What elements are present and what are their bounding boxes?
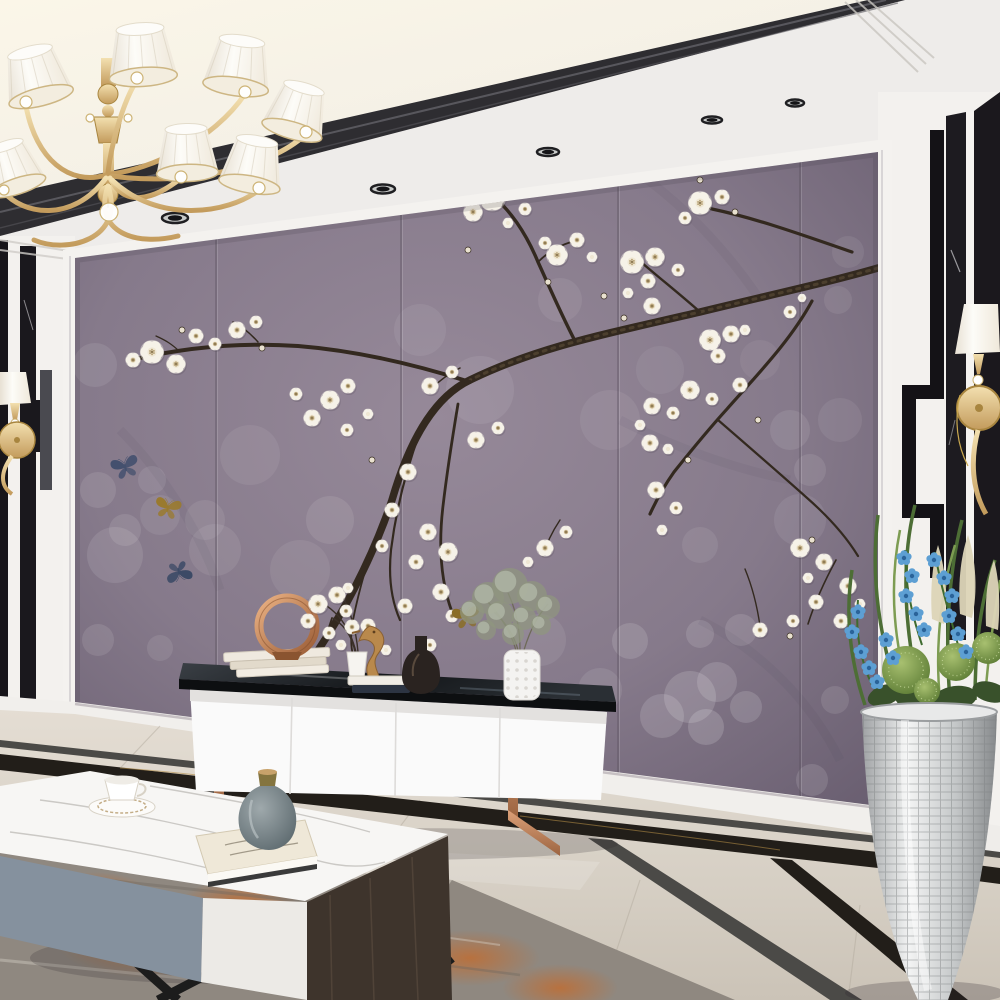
crystal-ball: [124, 114, 132, 122]
crystal-ball: [86, 114, 94, 122]
left-black-stripe: [20, 246, 36, 708]
bud: [465, 247, 471, 253]
bud: [685, 457, 691, 463]
sconce-medallion-center: [975, 404, 983, 412]
bokeh-spot: [770, 410, 810, 450]
left-grey-panel: [40, 370, 52, 490]
crystal-ball: [20, 96, 32, 108]
crystal-ball: [175, 171, 187, 183]
crystal-ball: [100, 203, 118, 221]
bokeh-spot: [109, 514, 141, 546]
crystal-ball: [253, 182, 265, 194]
sconce-medallion-center: [14, 437, 20, 443]
bokeh-spot: [697, 662, 737, 702]
crystal-ball: [131, 72, 143, 84]
bud: [809, 537, 815, 543]
sconce-shade: [0, 372, 31, 405]
bokeh-spot: [821, 686, 849, 714]
bud: [545, 279, 551, 285]
crystal-ball: [239, 86, 251, 98]
recessed-downlight: [786, 100, 804, 107]
bokeh-spot: [82, 624, 114, 656]
crystal-ball: [0, 185, 9, 195]
recessed-downlight: [702, 117, 722, 124]
bud: [755, 417, 761, 423]
bokeh-spot: [730, 691, 762, 723]
living-room-scene: [0, 0, 1000, 1000]
recessed-downlight: [371, 185, 395, 194]
bokeh-spot: [688, 709, 724, 745]
bokeh-spot: [270, 540, 330, 600]
bud: [621, 315, 627, 321]
bokeh-spot: [147, 635, 173, 661]
bokeh-spot: [538, 278, 582, 322]
bokeh-spot: [818, 398, 862, 442]
recessed-downlight: [537, 148, 559, 156]
bokeh-spot: [394, 304, 446, 356]
bokeh-spot: [306, 496, 354, 544]
bokeh-spot: [794, 454, 826, 486]
bud: [787, 633, 793, 639]
bokeh-spot: [824, 286, 852, 314]
bud: [732, 209, 738, 215]
recessed-downlight: [162, 213, 188, 223]
bokeh-spot: [640, 694, 684, 738]
book-stack: [348, 676, 410, 693]
bud: [601, 293, 607, 299]
bokeh-spot: [796, 764, 828, 796]
bokeh-spot: [636, 346, 684, 394]
bokeh-spot: [580, 390, 640, 450]
bud: [179, 327, 185, 333]
bud: [369, 457, 375, 463]
bud: [259, 345, 265, 351]
sconce-crystal: [973, 375, 983, 385]
bokeh-spot: [220, 425, 280, 485]
crystal-ball: [300, 126, 312, 138]
bokeh-spot: [80, 472, 116, 508]
bokeh-spot: [682, 527, 718, 563]
